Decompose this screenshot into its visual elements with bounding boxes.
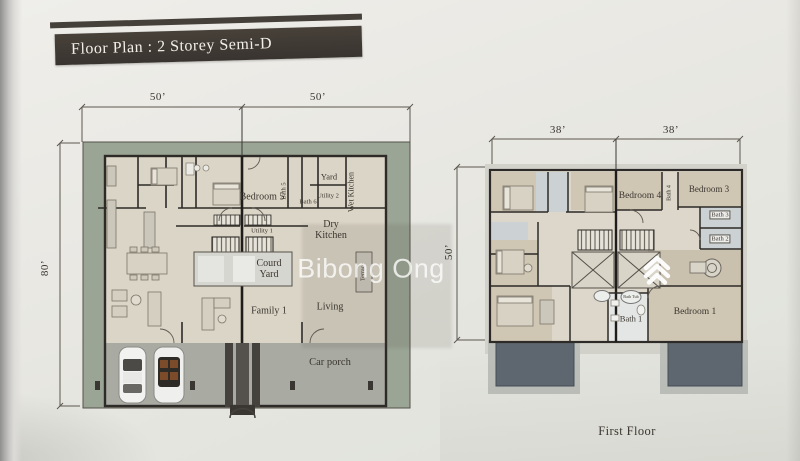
label-bath-3: Bath 3 bbox=[709, 210, 730, 219]
dim-38ft-right: 38’ bbox=[663, 124, 679, 136]
label-bedroom-5: Bedroom 5 bbox=[238, 192, 286, 203]
label-living: Living bbox=[317, 302, 344, 313]
label-bedroom-1: Bedroom 1 bbox=[674, 307, 716, 317]
photo-shadow-patch bbox=[302, 224, 452, 348]
caption-first-floor: First Floor bbox=[598, 425, 656, 439]
photo-right-edge bbox=[786, 0, 800, 461]
label-bath-6: Bath 6 bbox=[299, 198, 316, 205]
page-corner-shadow bbox=[0, 391, 160, 461]
label-bedroom-4: Bedroom 4 bbox=[617, 191, 663, 201]
photo-left-edge bbox=[0, 0, 22, 461]
photo-shadow-bottom bbox=[440, 340, 800, 461]
label-car-porch: Car porch bbox=[309, 357, 351, 369]
label-family-1: Family 1 bbox=[249, 306, 289, 317]
entrance-gate bbox=[225, 343, 260, 418]
dim-50ft-right: 50’ bbox=[310, 91, 326, 103]
label-courtyard: Courd Yard bbox=[249, 258, 289, 280]
label-yard: Yard bbox=[321, 172, 337, 181]
label-bath-2: Bath 2 bbox=[709, 234, 730, 243]
label-bath-tub: Bath Tub bbox=[623, 295, 638, 300]
watermark-text: Bibong Ong bbox=[297, 254, 445, 285]
dim-38ft-left: 38’ bbox=[550, 124, 566, 136]
stacked-chevron-logo-icon bbox=[637, 249, 677, 289]
label-bath-5: Bath 5 bbox=[280, 182, 287, 199]
dim-50ft-left: 50’ bbox=[150, 91, 166, 103]
floor-plan-page: Floor Plan : 2 Storey Semi-D 50’ 50’ 80’… bbox=[0, 0, 800, 461]
label-utility-2: Utility 2 bbox=[316, 192, 340, 199]
label-dry-kitchen: Dry Kitchen bbox=[309, 219, 353, 241]
label-bath-4: Bath 4 bbox=[667, 185, 674, 201]
label-wet-kitchen: Wet Kitchen bbox=[348, 170, 357, 214]
label-bedroom-3: Bedroom 3 bbox=[689, 185, 729, 195]
dim-80ft: 80’ bbox=[39, 260, 51, 276]
label-utility-1: Utility 1 bbox=[251, 227, 273, 234]
label-bath-1: Bath 1 bbox=[620, 314, 642, 323]
